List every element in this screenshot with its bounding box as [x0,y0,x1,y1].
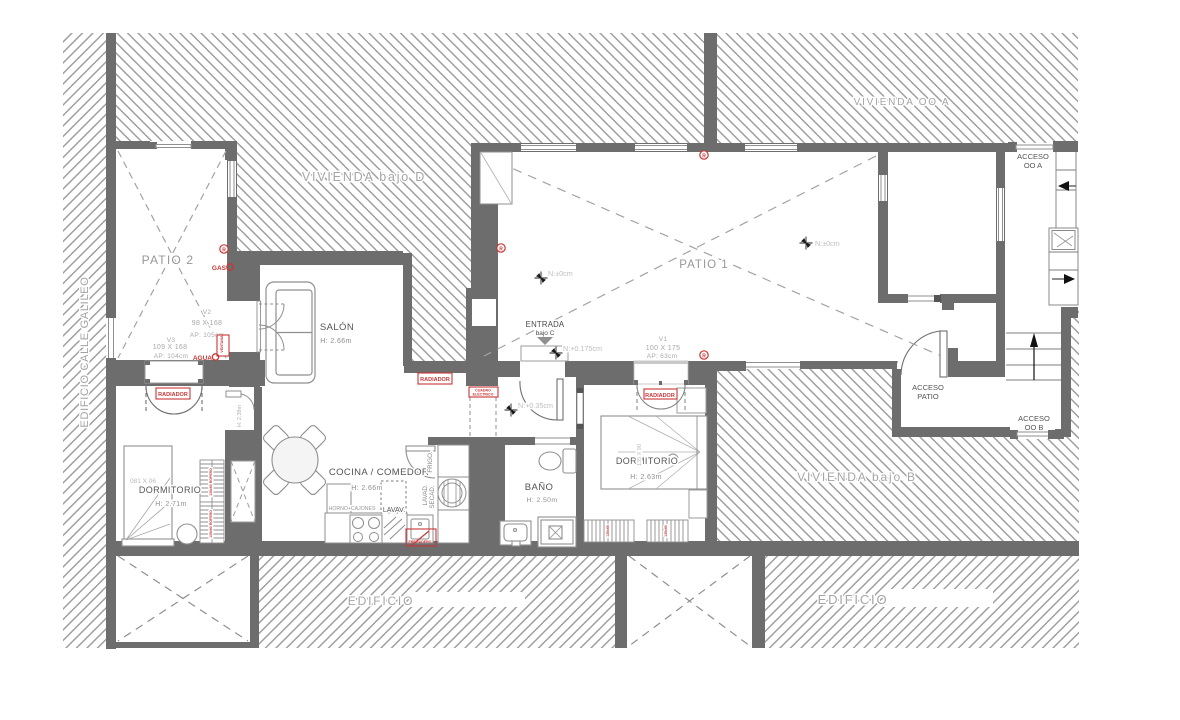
svg-text:R: R [702,154,706,160]
svg-text:FRIGO.: FRIGO. [427,451,434,473]
svg-text:H: 2.66m: H: 2.66m [351,485,383,492]
svg-text:ELÉCTRICO: ELÉCTRICO [473,392,494,397]
svg-text:BAÑO: BAÑO [525,482,554,493]
svg-text:N:+0.175cm: N:+0.175cm [563,344,602,353]
svg-text:N:±0cm: N:±0cm [815,239,840,248]
svg-text:EDIFICIO: EDIFICIO [818,592,889,607]
svg-text:bajo C: bajo C [536,330,555,337]
svg-text:V1: V1 [659,336,668,343]
svg-text:RADIADOR: RADIADOR [645,393,675,399]
svg-text:EDIFICIO: EDIFICIO [348,594,414,608]
svg-text:LAVAV.: LAVAV. [383,507,405,514]
svg-text:98 X 168: 98 X 168 [192,320,222,327]
svg-text:135x60 ROPERO: 135x60 ROPERO [209,510,213,538]
svg-text:ACCESO: ACCESO [1017,152,1049,161]
svg-text:100 X 175: 100 X 175 [646,345,681,352]
svg-text:ACCESO: ACCESO [912,383,944,392]
svg-text:V3: V3 [167,337,176,344]
svg-text:H: 2.71m: H: 2.71m [155,501,187,508]
svg-text:OO B: OO B [1025,423,1044,432]
svg-text:ENTRADA: ENTRADA [526,320,565,329]
svg-text:COCINA / COMEDOR: COCINA / COMEDOR [329,467,429,478]
svg-text:135x60: 135x60 [606,525,610,537]
svg-text:V2: V2 [203,309,212,316]
svg-text:DORMITORIO: DORMITORIO [139,485,201,495]
svg-text:HORNO+CAJONES: HORNO+CAJONES [329,506,376,512]
svg-text:AGUA: AGUA [193,355,212,362]
svg-text:N:+0.35cm: N:+0.35cm [518,401,553,410]
svg-text:VIVIENDA bajo D: VIVIENDA bajo D [302,170,426,184]
svg-text:LAVAD.: LAVAD. [422,484,429,505]
svg-text:135 X 90: 135 X 90 [637,444,643,466]
svg-text:VIVIENDA bajo B: VIVIENDA bajo B [797,470,917,484]
svg-text:H: 2.50m: H: 2.50m [527,497,558,504]
svg-text:RADIADOR: RADIADOR [158,392,188,398]
svg-text:EDIFICIO CALLE GALILEO: EDIFICIO CALLE GALILEO [79,276,91,427]
svg-text:VIVIENDA OO A: VIVIENDA OO A [854,97,951,108]
svg-text:ACCESO: ACCESO [1018,414,1050,423]
svg-text:GAS: GAS [212,265,227,272]
svg-text:DORMITORIO: DORMITORIO [616,456,678,466]
svg-text:AP: 63cm: AP: 63cm [647,353,678,360]
svg-text:VENTANA: VENTANA [220,335,224,353]
svg-text:PATIO: PATIO [917,392,939,401]
svg-text:AP: 104cm: AP: 104cm [154,353,189,360]
svg-text:H: 2.63m: H: 2.63m [630,474,662,481]
svg-text:R: R [222,248,226,254]
svg-text:081 X 06: 081 X 06 [130,478,156,485]
svg-text:N:±0cm: N:±0cm [548,269,573,278]
svg-text:PATIO 1: PATIO 1 [679,259,728,271]
svg-text:SALÓN: SALÓN [320,322,354,333]
svg-text:PATIO 2: PATIO 2 [142,253,195,267]
svg-text:135x60: 135x60 [664,525,668,537]
svg-text:H: 2.39m: H: 2.39m [237,404,243,427]
svg-text:SECAD.: SECAD. [429,485,436,508]
svg-text:R: R [499,247,503,253]
svg-text:135x60 ROPERO: 135x60 ROPERO [209,468,213,496]
svg-text:OO A: OO A [1024,161,1042,170]
svg-text:109 X 168: 109 X 168 [153,344,188,351]
svg-text:RADIADOR: RADIADOR [420,377,450,383]
svg-text:R: R [702,354,706,360]
svg-text:FREGADERO: FREGADERO [409,540,432,544]
svg-text:H: 2.66m: H: 2.66m [320,338,352,345]
